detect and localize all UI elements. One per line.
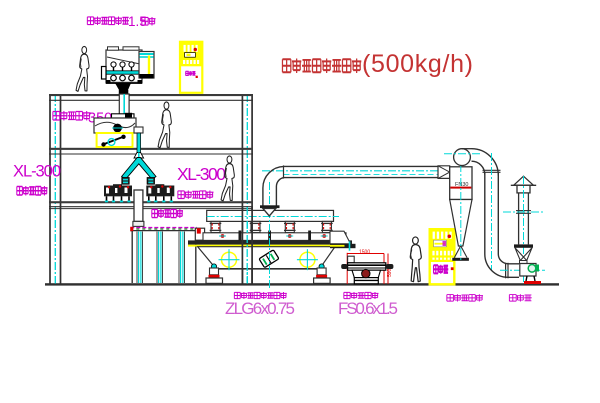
svg-text:1500: 1500	[359, 250, 370, 256]
svg-text:XL-300: XL-300	[177, 164, 226, 184]
svg-text:(500kg/h): (500kg/h)	[362, 50, 473, 78]
svg-text:ZLG6x0.75: ZLG6x0.75	[225, 299, 295, 318]
svg-text:XL-300: XL-300	[13, 163, 61, 181]
svg-text:590: 590	[387, 268, 393, 277]
svg-text:FS0.6x1.5: FS0.6x1.5	[338, 299, 398, 318]
svg-text:FN30: FN30	[455, 182, 468, 188]
